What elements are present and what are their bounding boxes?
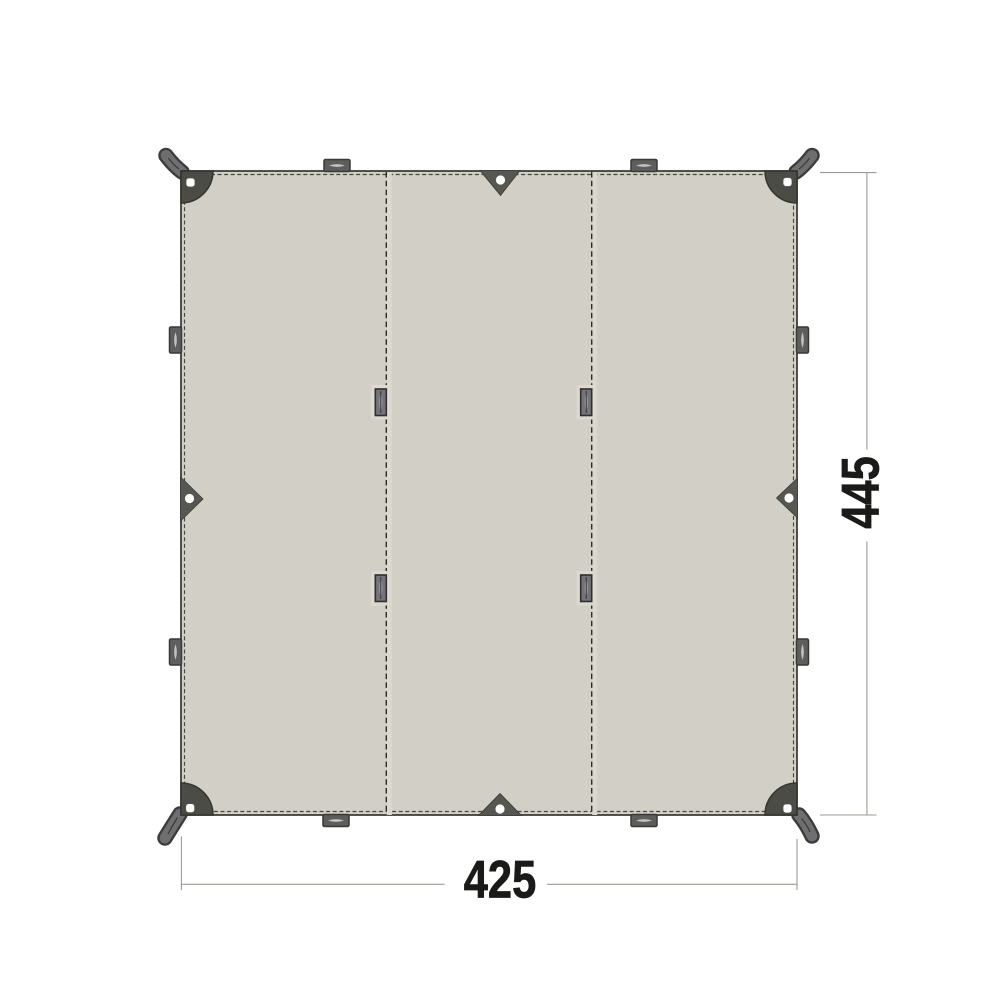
svg-text:445: 445	[831, 456, 890, 528]
svg-text:425: 425	[464, 850, 536, 909]
